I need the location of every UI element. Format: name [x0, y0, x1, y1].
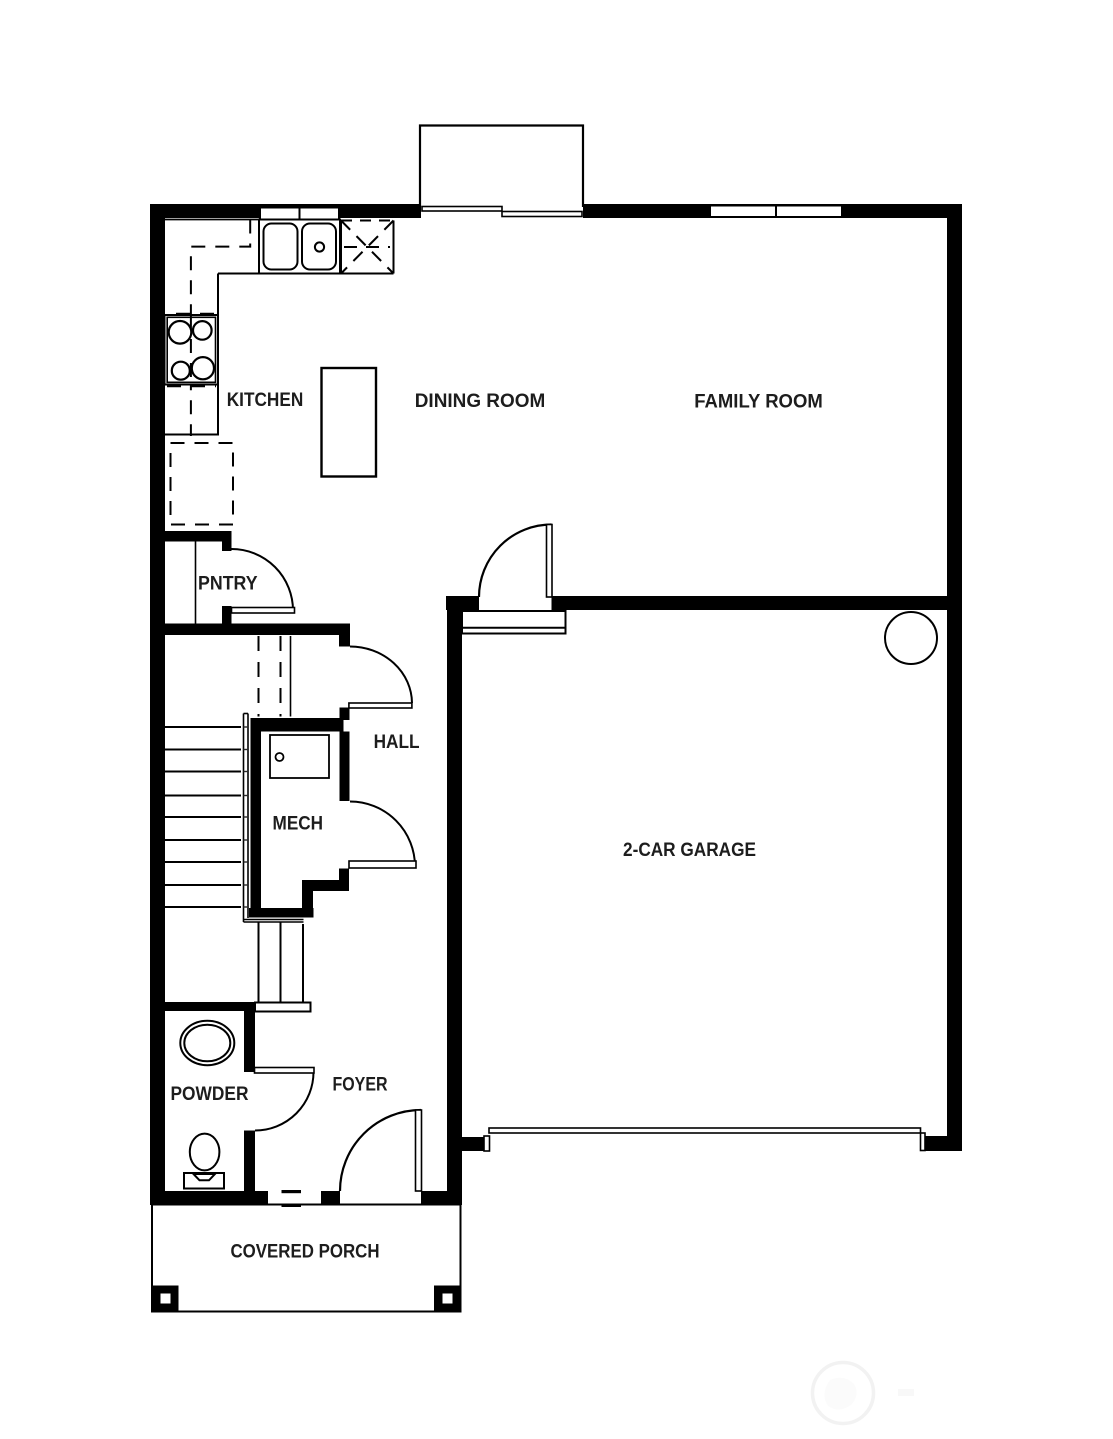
svg-text:MECH: MECH	[273, 813, 324, 835]
svg-text:2-CAR GARAGE: 2-CAR GARAGE	[623, 839, 756, 861]
svg-text:FAMILY ROOM: FAMILY ROOM	[694, 391, 823, 413]
svg-text:DINING ROOM: DINING ROOM	[415, 390, 546, 412]
svg-text:POWDER: POWDER	[171, 1083, 249, 1105]
svg-text:FOYER: FOYER	[333, 1074, 388, 1096]
svg-text:HALL: HALL	[374, 731, 420, 753]
svg-text:KITCHEN: KITCHEN	[227, 389, 304, 411]
svg-text:PNTRY: PNTRY	[198, 573, 258, 595]
svg-text:COVERED PORCH: COVERED PORCH	[231, 1241, 380, 1263]
